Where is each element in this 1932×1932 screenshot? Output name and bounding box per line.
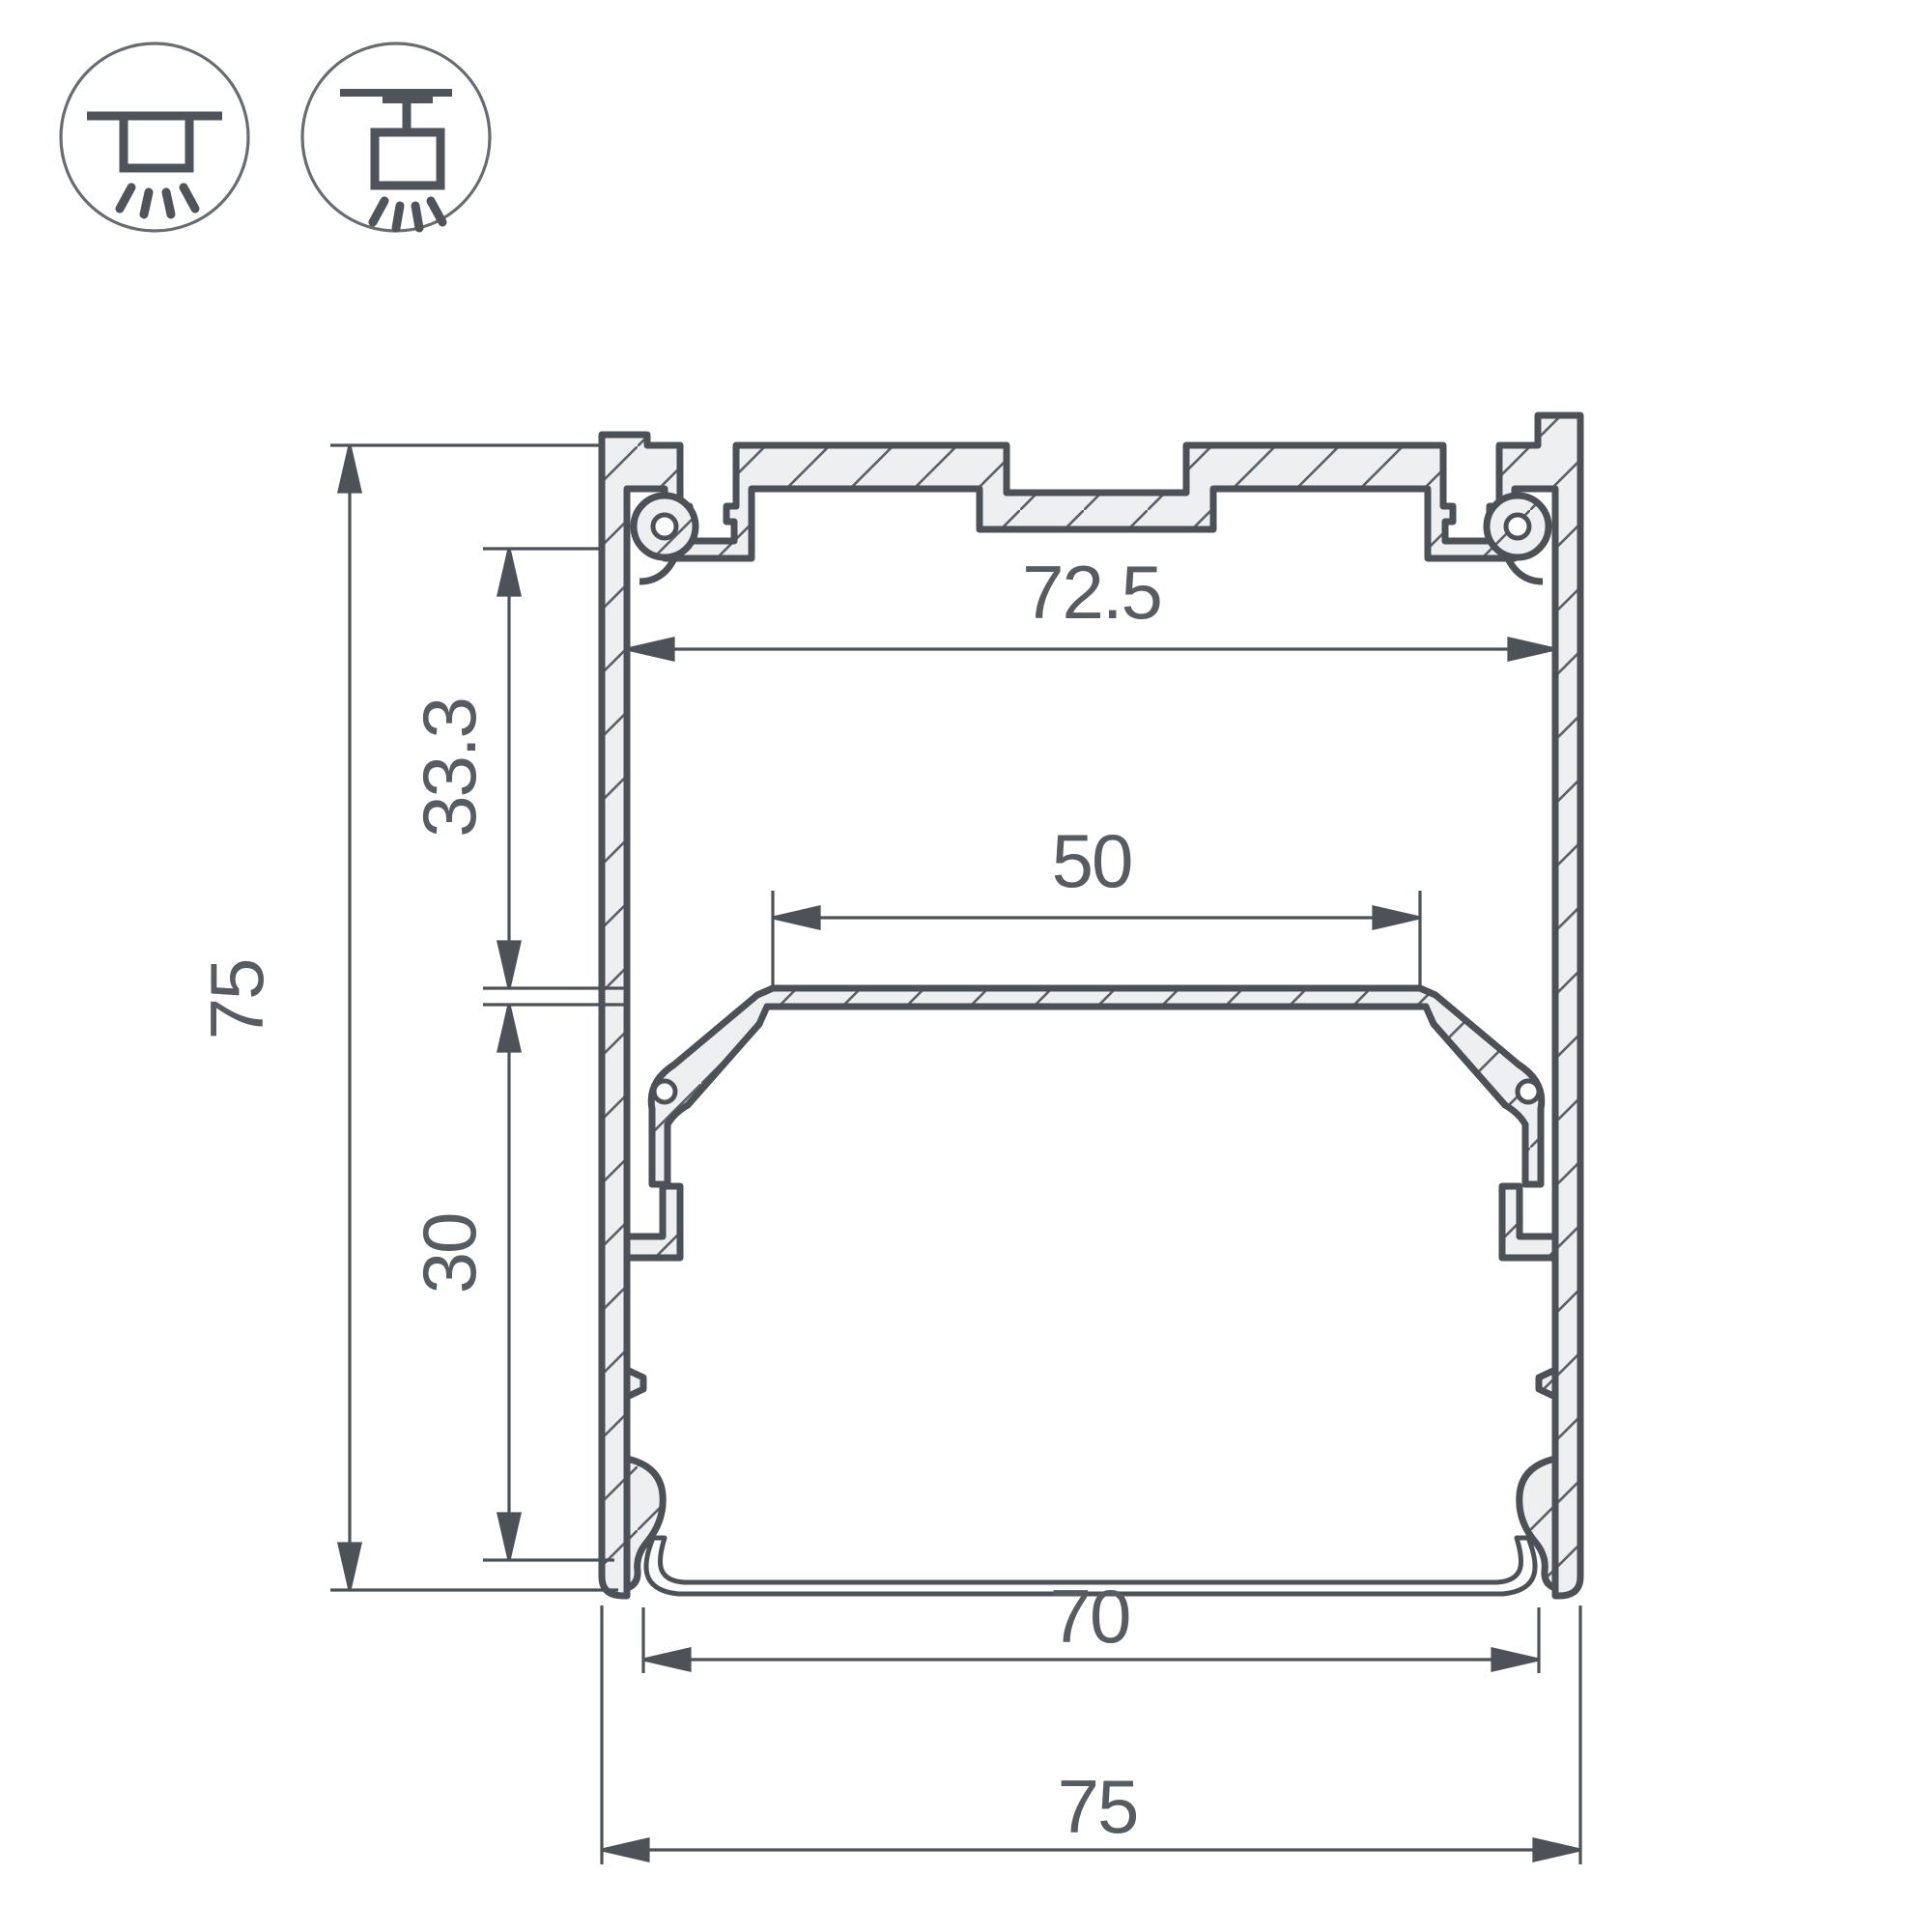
dimension-label-lower-cavity: 30: [407, 1214, 492, 1294]
arrowhead-up: [498, 1005, 520, 1051]
fixture-box: [124, 116, 189, 168]
dimension-label-overall-height: 75: [194, 960, 279, 1040]
dimension-label-upper-cavity: 33.3: [407, 698, 492, 838]
pendant-mount-icon: [302, 43, 490, 231]
arrowhead-down: [498, 942, 520, 988]
screw-hole-top-left: [653, 515, 676, 538]
dimension-overall-height: 75: [194, 445, 618, 1590]
dimension-label-bottom-width: 70: [1050, 1574, 1130, 1659]
dimension-label-overall-width: 75: [1058, 1764, 1138, 1849]
fixture-box: [375, 132, 440, 185]
technical-drawing-page: 75 33.3 30 72.5: [0, 0, 1932, 1932]
screw-hole-shelf-right: [1518, 1081, 1539, 1102]
dimension-upper-cavity: 33.3: [407, 549, 630, 988]
screw-hole-shelf-left: [654, 1081, 675, 1102]
dimensions: 75 33.3 30 72.5: [194, 445, 1580, 1864]
track-plate: [383, 92, 433, 103]
screw-hole-top-right: [1506, 515, 1529, 538]
arrowhead-up: [339, 445, 360, 492]
arrowhead-left: [627, 639, 673, 660]
arrowhead-down: [339, 1544, 360, 1590]
arrowhead-right: [1509, 639, 1555, 660]
arrowhead-right: [1534, 1839, 1580, 1861]
arrowhead-left: [602, 1839, 648, 1861]
led-shelf: [651, 988, 1542, 1184]
light-rays-icon: [120, 187, 195, 214]
dimension-label-shelf-width: 50: [1052, 818, 1132, 903]
icon-circle: [302, 43, 490, 231]
dimension-inner-top-width: 72.5: [627, 550, 1555, 660]
dimension-label-inner-top-width: 72.5: [1022, 550, 1161, 635]
arrowhead-left: [773, 907, 819, 928]
dimension-shelf-width: 50: [773, 818, 1420, 985]
arrowhead-up: [498, 549, 520, 595]
hook-left: [627, 1186, 680, 1258]
arrowhead-right: [1492, 1649, 1539, 1670]
arrowhead-left: [643, 1649, 690, 1670]
nub-right: [1539, 1370, 1555, 1397]
arrowhead-right: [1374, 907, 1420, 928]
icon-circle: [61, 43, 248, 231]
dimension-lower-cavity: 30: [407, 1005, 630, 1560]
profile-drawing-canvas: 75 33.3 30 72.5: [0, 0, 1932, 1932]
arrowhead-down: [498, 1514, 520, 1560]
nub-left: [627, 1370, 643, 1397]
surface-mount-icon: [61, 43, 248, 231]
hook-right: [1502, 1186, 1555, 1258]
